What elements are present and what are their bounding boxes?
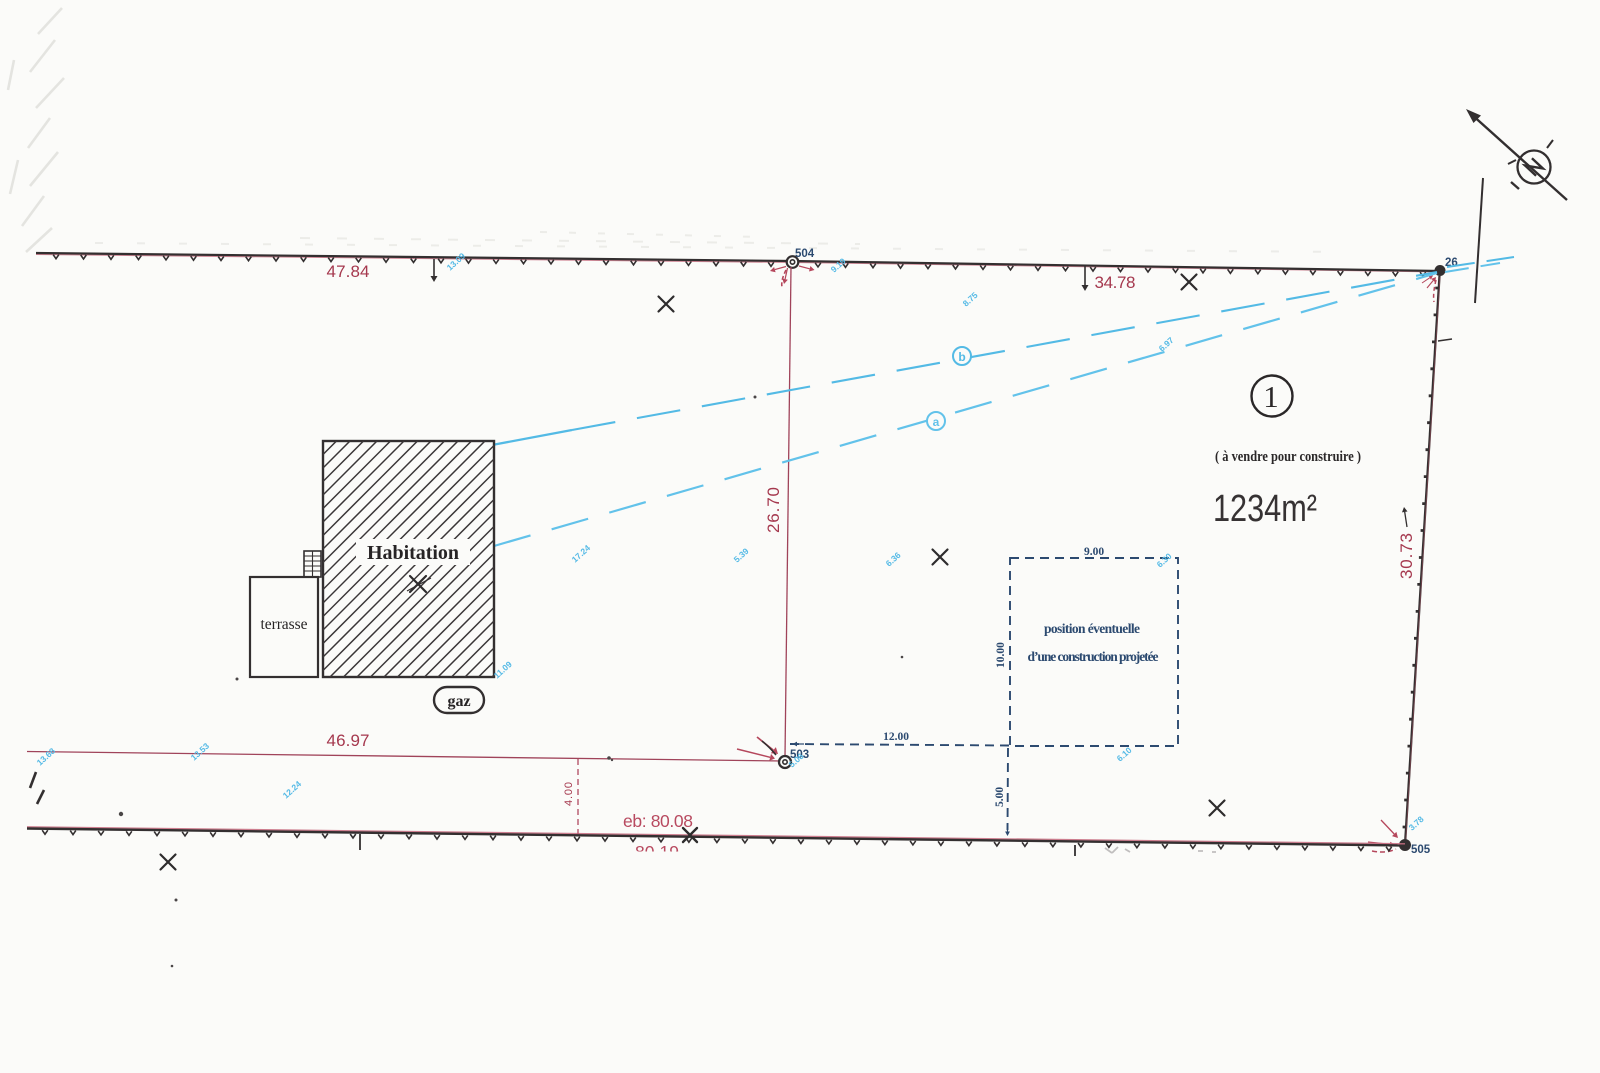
- svg-text:34.78: 34.78: [1095, 273, 1136, 292]
- svg-text:position éventuelle: position éventuelle: [1044, 621, 1140, 636]
- svg-text:Habitation: Habitation: [367, 542, 459, 564]
- svg-text:504: 504: [795, 248, 815, 260]
- svg-text:9.00: 9.00: [1084, 546, 1104, 558]
- svg-text:1: 1: [1263, 379, 1279, 414]
- svg-text:terrasse: terrasse: [261, 616, 308, 633]
- svg-text:505: 505: [1411, 844, 1431, 856]
- svg-text:a: a: [933, 415, 940, 429]
- svg-text:12.00: 12.00: [883, 731, 909, 743]
- svg-text:10.00: 10.00: [995, 642, 1007, 668]
- svg-text:gaz: gaz: [447, 693, 470, 710]
- svg-text:46.97: 46.97: [327, 731, 370, 750]
- svg-text:( à vendre pour construire ): ( à vendre pour construire ): [1215, 449, 1361, 465]
- svg-text:b: b: [958, 350, 965, 364]
- svg-text:26.70: 26.70: [764, 487, 783, 533]
- svg-text:5.00: 5.00: [994, 787, 1006, 807]
- svg-text:d’une construction projetée: d’une construction projetée: [1028, 649, 1159, 664]
- svg-text:30.73: 30.73: [1397, 533, 1416, 579]
- svg-text:1234m²: 1234m²: [1213, 488, 1317, 530]
- svg-text:4.00: 4.00: [563, 782, 575, 806]
- svg-text:47.84: 47.84: [327, 262, 370, 281]
